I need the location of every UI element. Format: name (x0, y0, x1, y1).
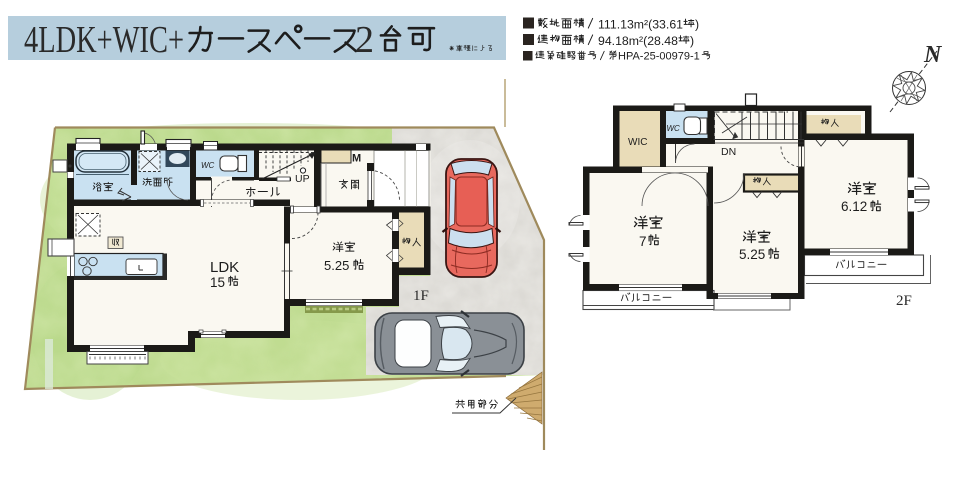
svg-text:WC: WC (201, 161, 215, 170)
svg-text:): ) (690, 34, 694, 48)
svg-text:2F: 2F (896, 293, 912, 309)
svg-text:111.13m²(33.61: 111.13m²(33.61 (598, 18, 683, 32)
svg-text:WIC: WIC (628, 137, 647, 148)
svg-text:2: 2 (355, 19, 374, 61)
svg-text:5.25: 5.25 (324, 258, 349, 273)
svg-text:WC: WC (667, 124, 681, 133)
svg-text:DN: DN (721, 146, 736, 158)
svg-text:LDK: LDK (210, 259, 239, 276)
svg-text:4LDK+WIC+: 4LDK+WIC+ (24, 19, 184, 61)
svg-text:7: 7 (639, 234, 647, 249)
svg-text:HPA-25-00979-1: HPA-25-00979-1 (618, 51, 700, 63)
svg-text:1F: 1F (413, 288, 429, 304)
svg-text:5.25: 5.25 (739, 247, 765, 262)
svg-text:M: M (352, 153, 361, 165)
svg-text:): ) (695, 18, 699, 32)
svg-text:UP: UP (295, 173, 310, 185)
svg-text:N: N (923, 42, 943, 68)
svg-text:94.18m²(28.48: 94.18m²(28.48 (598, 34, 678, 48)
svg-text:15: 15 (210, 275, 225, 290)
svg-text:6.12: 6.12 (841, 199, 867, 214)
